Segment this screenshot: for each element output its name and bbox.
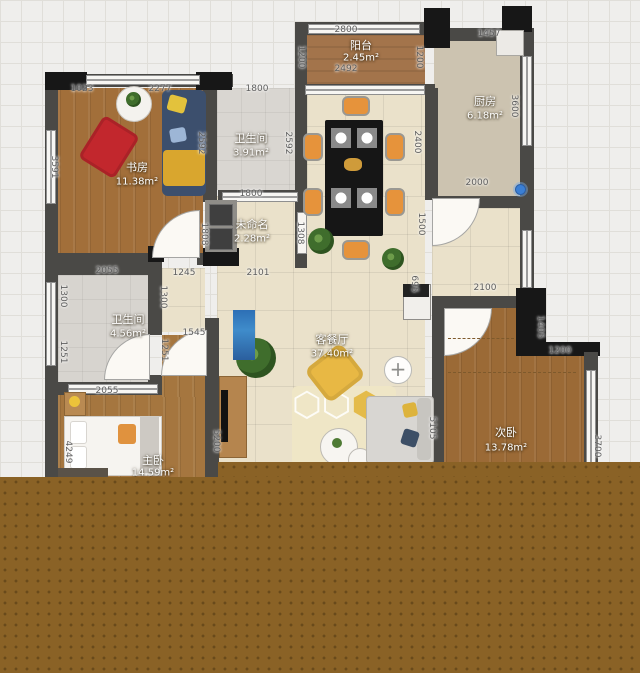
room-label-bath-left: 卫生间 [112, 311, 145, 327]
room-area-study: 11.38m² [116, 177, 158, 188]
dining-chair [385, 188, 405, 216]
dining-chair [342, 240, 370, 260]
window [305, 85, 425, 95]
dimension-label: 1405 [535, 316, 545, 339]
tv [221, 390, 228, 442]
room-area-balcony: 2.45m² [343, 53, 379, 64]
dining-chair [303, 133, 323, 161]
brown-overlay-step [218, 462, 640, 478]
dimension-label: 1800 [240, 189, 263, 199]
dimension-label: 1808 [199, 223, 209, 246]
wall-corner-block [196, 72, 232, 90]
table-decor [332, 438, 342, 448]
dining-chair [342, 96, 370, 116]
dimension-label: 2400 [412, 131, 422, 154]
dimension-label: 1245 [173, 268, 196, 278]
wall-segment [205, 318, 219, 480]
wall-segment [425, 88, 438, 200]
room-area-second: 13.78m² [485, 443, 527, 454]
potted-plant [308, 228, 334, 254]
dimension-label: 3600 [509, 95, 519, 118]
dimension-label: 3700 [592, 435, 602, 458]
dimension-label: 2492 [335, 64, 358, 74]
wall-segment [432, 296, 522, 308]
dimension-label: 1800 [246, 84, 269, 94]
room-area-kitchen: 6.18m² [467, 111, 503, 122]
closet-outline [448, 338, 514, 339]
dimension-label: 3591 [49, 156, 59, 179]
lamp [69, 396, 80, 407]
dimension-label: 1251 [58, 341, 68, 364]
window [522, 56, 532, 146]
place-setting [357, 128, 377, 148]
dimension-label: 1200 [549, 346, 572, 356]
room-area-living: 37.40m² [311, 349, 353, 360]
place-setting [331, 188, 351, 208]
dimension-label: 4249 [63, 441, 73, 464]
location-pin-icon [515, 184, 526, 195]
window [522, 230, 532, 288]
dimension-label: 2100 [474, 283, 497, 293]
window [46, 282, 56, 366]
dimension-label: 1457 [478, 29, 501, 39]
wall-corner-block [502, 6, 532, 32]
window [308, 24, 420, 34]
room-area-unnamed: 2.28m² [234, 234, 270, 245]
dimension-label: 1300 [158, 286, 168, 309]
sink [209, 228, 233, 250]
place-setting [357, 188, 377, 208]
dimension-label: 695 [409, 275, 419, 292]
floorplan-canvas: ⬡⬡⬢ + 书房 11.38m² 卫生间 3.91m² 未命名 2.28m² 阳… [0, 0, 640, 673]
plus-button[interactable]: + [384, 356, 412, 384]
brown-overlay [0, 477, 640, 673]
dimension-label: 2592 [196, 132, 206, 155]
dimension-label: 2055 [96, 266, 119, 276]
dimension-label: 1308 [295, 222, 305, 245]
dining-chair [385, 133, 405, 161]
dimension-label: 1023 [71, 84, 94, 94]
potted-plant [126, 92, 141, 107]
throw-blanket [163, 150, 205, 186]
pillow [402, 402, 419, 419]
dining-chair [303, 188, 323, 216]
wardrobe [58, 468, 108, 477]
window [86, 75, 200, 85]
potted-plant [382, 248, 404, 270]
dimension-label: 2277 [149, 84, 172, 94]
room-label-study: 书房 [126, 159, 148, 175]
dimension-label: 1500 [416, 213, 426, 236]
room-area-bath-left: 4.56m² [110, 329, 146, 340]
dimension-label: 2000 [466, 178, 489, 188]
dimension-label: 1200 [414, 46, 424, 69]
dimension-label: 1200 [296, 46, 306, 69]
room-label-unnamed: 未命名 [236, 216, 269, 232]
dimension-label: 5200 [211, 430, 221, 453]
room-area-bath-top: 3.91m² [233, 148, 269, 159]
dimension-label: 2592 [283, 132, 293, 155]
room-label-second: 次卧 [495, 424, 517, 440]
room-label-master: 主卧 [142, 452, 164, 468]
closet-outline [448, 372, 576, 373]
room-label-balcony: 阳台 [350, 37, 372, 53]
pillow-orange [118, 424, 136, 444]
dimension-label: 5105 [427, 417, 437, 440]
dimension-label: 2055 [96, 386, 119, 396]
aquarium [233, 310, 255, 360]
dimension-label: 2800 [335, 25, 358, 35]
room-label-kitchen: 厨房 [474, 93, 496, 109]
place-setting [331, 128, 351, 148]
sink [209, 204, 233, 226]
dimension-label: 1545 [183, 328, 206, 338]
room-label-living: 客餐厅 [316, 331, 349, 347]
dimension-label: 2101 [247, 268, 270, 278]
dimension-label: 1300 [58, 285, 68, 308]
dimension-label: 1251 [159, 339, 169, 362]
room-label-bath-top: 卫生间 [235, 130, 268, 146]
table-centerpiece [344, 158, 362, 171]
pillow [169, 127, 187, 144]
wall-corner-block [424, 8, 450, 48]
